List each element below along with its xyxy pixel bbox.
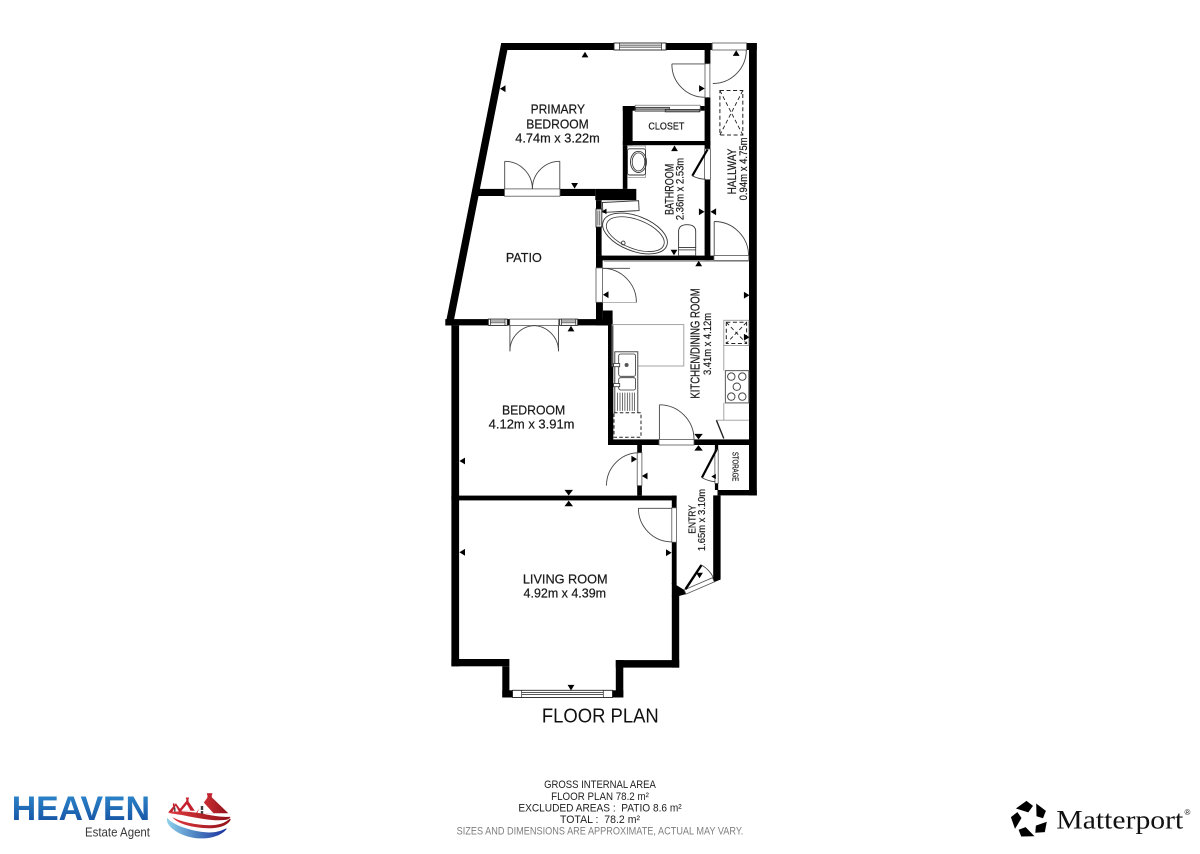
svg-text:BEDROOM: BEDROOM xyxy=(526,117,588,132)
svg-text:PRIMARY: PRIMARY xyxy=(531,101,586,116)
svg-text:SIZES AND DIMENSIONS ARE APPRO: SIZES AND DIMENSIONS ARE APPROXIMATE, AC… xyxy=(457,826,744,838)
svg-text:4.12m x 3.91m: 4.12m x 3.91m xyxy=(489,416,575,431)
svg-text:3.41m x 4.12m: 3.41m x 4.12m xyxy=(702,313,714,375)
svg-text:FLOOR PLAN 78.2 m²: FLOOR PLAN 78.2 m² xyxy=(551,791,649,803)
svg-text:FLOOR PLAN: FLOOR PLAN xyxy=(542,704,659,727)
svg-text:CLOSET: CLOSET xyxy=(648,122,684,133)
svg-text:KITCHEN/DINING ROOM: KITCHEN/DINING ROOM xyxy=(689,288,703,398)
svg-text:4.92m x 4.39m: 4.92m x 4.39m xyxy=(524,586,607,601)
svg-text:HEAVEN: HEAVEN xyxy=(12,790,150,828)
svg-text:GROSS INTERNAL AREA: GROSS INTERNAL AREA xyxy=(544,779,657,791)
svg-text:Matterport: Matterport xyxy=(1056,805,1184,834)
svg-text:®: ® xyxy=(1185,808,1191,817)
svg-text:STORAGE: STORAGE xyxy=(731,452,740,481)
svg-text:2.36m x 2.53m: 2.36m x 2.53m xyxy=(675,158,687,220)
svg-text:BEDROOM: BEDROOM xyxy=(502,402,565,417)
svg-text:PATIO: PATIO xyxy=(506,250,542,265)
svg-text:4.74m x 3.22m: 4.74m x 3.22m xyxy=(515,131,600,146)
svg-text:TOTAL : 78.2 m²: TOTAL : 78.2 m² xyxy=(560,814,640,826)
svg-text:LIVING ROOM: LIVING ROOM xyxy=(523,572,608,587)
svg-text:1.65m x 3.10m: 1.65m x 3.10m xyxy=(696,489,708,551)
svg-text:Estate Agent: Estate Agent xyxy=(85,826,150,840)
svg-text:HALLWAY: HALLWAY xyxy=(725,149,739,195)
svg-text:EXCLUDED AREAS : PATIO 8.6 m²: EXCLUDED AREAS : PATIO 8.6 m² xyxy=(518,803,682,815)
svg-text:0.94m x 4.75m: 0.94m x 4.75m xyxy=(738,137,750,200)
